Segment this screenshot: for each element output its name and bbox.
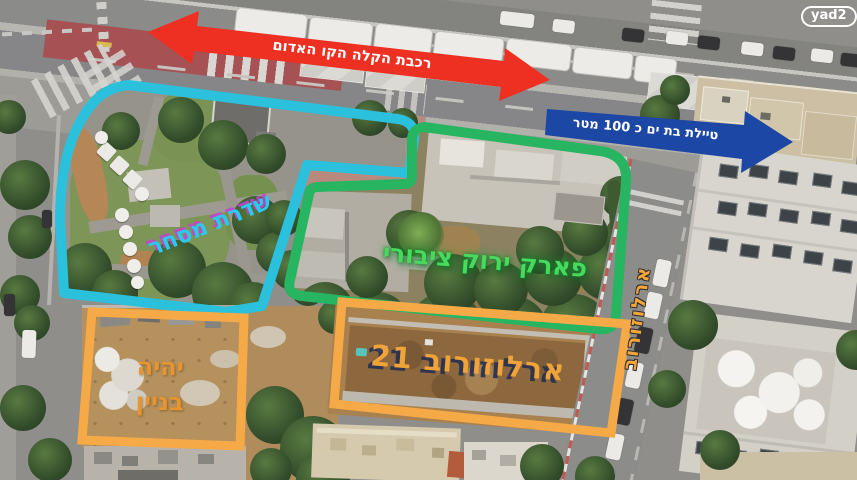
yad2-watermark: yad2 (801, 6, 857, 27)
future-building-label: יהיה בניין (89, 349, 230, 421)
future-building-label-line2: בניין (89, 384, 230, 421)
future-building-label-line1: יהיה (90, 349, 231, 386)
commerce-zone-outline (60, 85, 414, 312)
annotated-aerial-map: רכבת הקלה הקו האדום טיילת בת ים כ 100 מט… (0, 0, 857, 480)
